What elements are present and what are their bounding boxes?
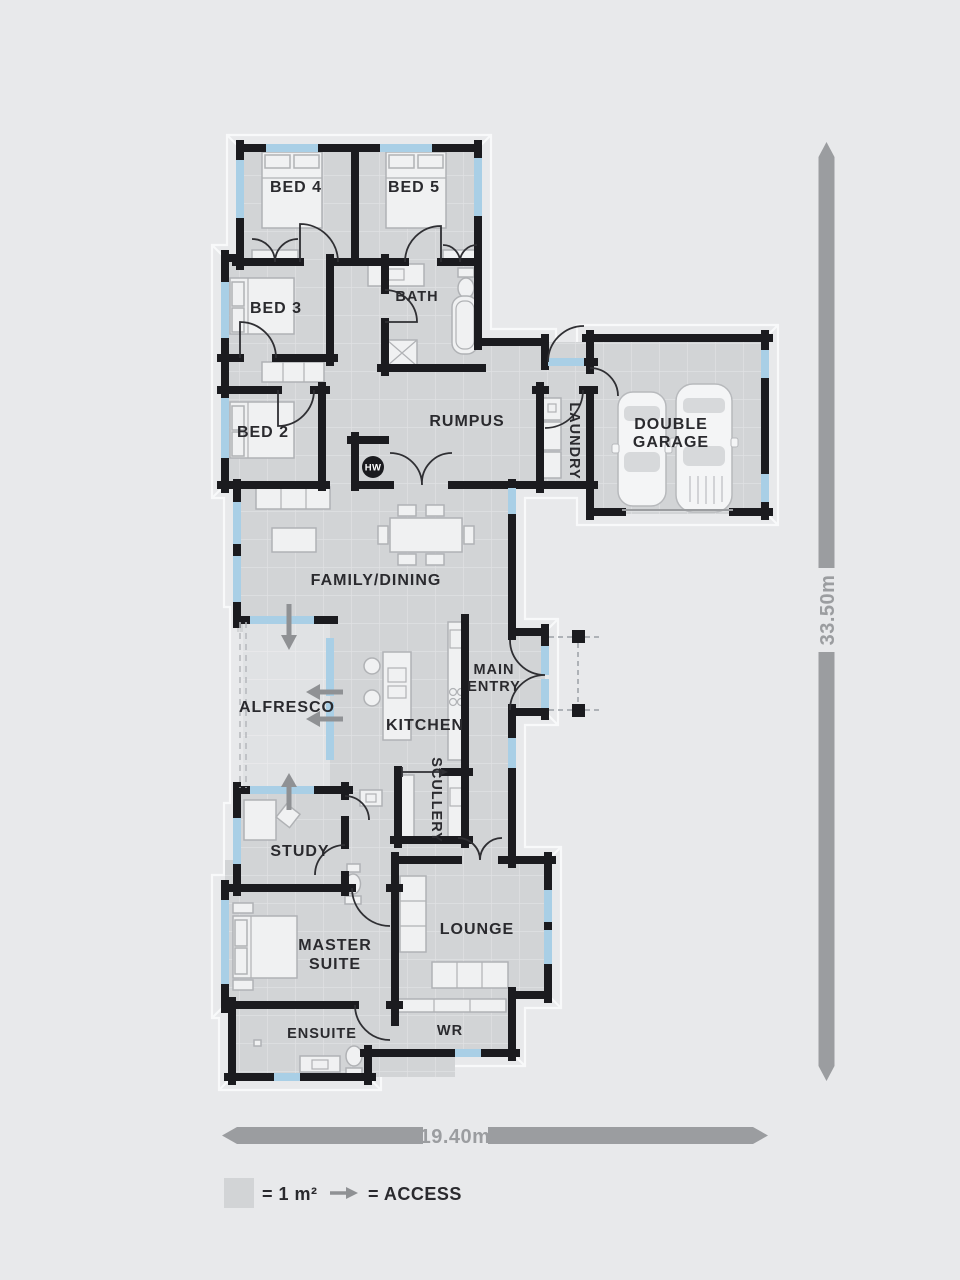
room-label-laundry: LAUNDRY [566, 402, 582, 479]
room-label-entry-2: ENTRY [467, 679, 521, 695]
dimension-width-label: 19.40m [420, 1126, 491, 1148]
dimension-depth-label: 33.50m [817, 575, 839, 646]
room-label-bed3: BED 3 [250, 300, 302, 317]
entry-porch [549, 630, 600, 717]
room-label-garage-2: GARAGE [633, 434, 709, 451]
legend: = 1 m² = ACCESS [224, 1178, 462, 1208]
master-furniture [233, 903, 297, 990]
linen-closet [262, 362, 324, 382]
room-label-entry-1: MAIN [473, 662, 514, 678]
porch-post [572, 630, 585, 643]
floor-plan-canvas: HW BED 4 BED 5 BED 3 BATH BED 2 RUMPUS L… [0, 0, 960, 1280]
room-label-scullery: SCULLERY [428, 757, 444, 843]
hot-water-label: HW [365, 463, 381, 474]
legend-access-arrow-icon [330, 1187, 358, 1199]
hot-water-icon: HW [362, 456, 384, 478]
room-label-family-dining: FAMILY/DINING [311, 572, 442, 589]
room-label-alfresco: ALFRESCO [239, 699, 335, 716]
room-label-bed5: BED 5 [388, 179, 440, 196]
laundry-fixtures [543, 398, 561, 478]
room-label-garage-1: DOUBLE [634, 416, 708, 433]
room-label-lounge: LOUNGE [440, 921, 514, 938]
dimension-depth: 33.50m [817, 142, 839, 1081]
room-label-bed2: BED 2 [237, 424, 289, 441]
floor-plan-page: HW BED 4 BED 5 BED 3 BATH BED 2 RUMPUS L… [0, 0, 960, 1280]
room-label-bed4: BED 4 [270, 179, 322, 196]
dimension-width: 19.40m [222, 1126, 768, 1148]
room-label-wr: WR [437, 1023, 463, 1039]
wr-fixtures [398, 999, 506, 1012]
room-label-kitchen: KITCHEN [386, 717, 464, 734]
room-label-bath: BATH [395, 289, 438, 305]
legend-area-label: = 1 m² [262, 1184, 318, 1204]
legend-area-swatch [224, 1178, 254, 1208]
room-label-ensuite: ENSUITE [287, 1026, 357, 1042]
porch-post [572, 704, 585, 717]
room-label-master-1: MASTER [298, 937, 372, 954]
legend-access-label: = ACCESS [368, 1184, 462, 1204]
room-label-rumpus: RUMPUS [429, 413, 504, 430]
room-label-study: STUDY [270, 843, 329, 860]
room-label-master-2: SUITE [309, 956, 361, 973]
